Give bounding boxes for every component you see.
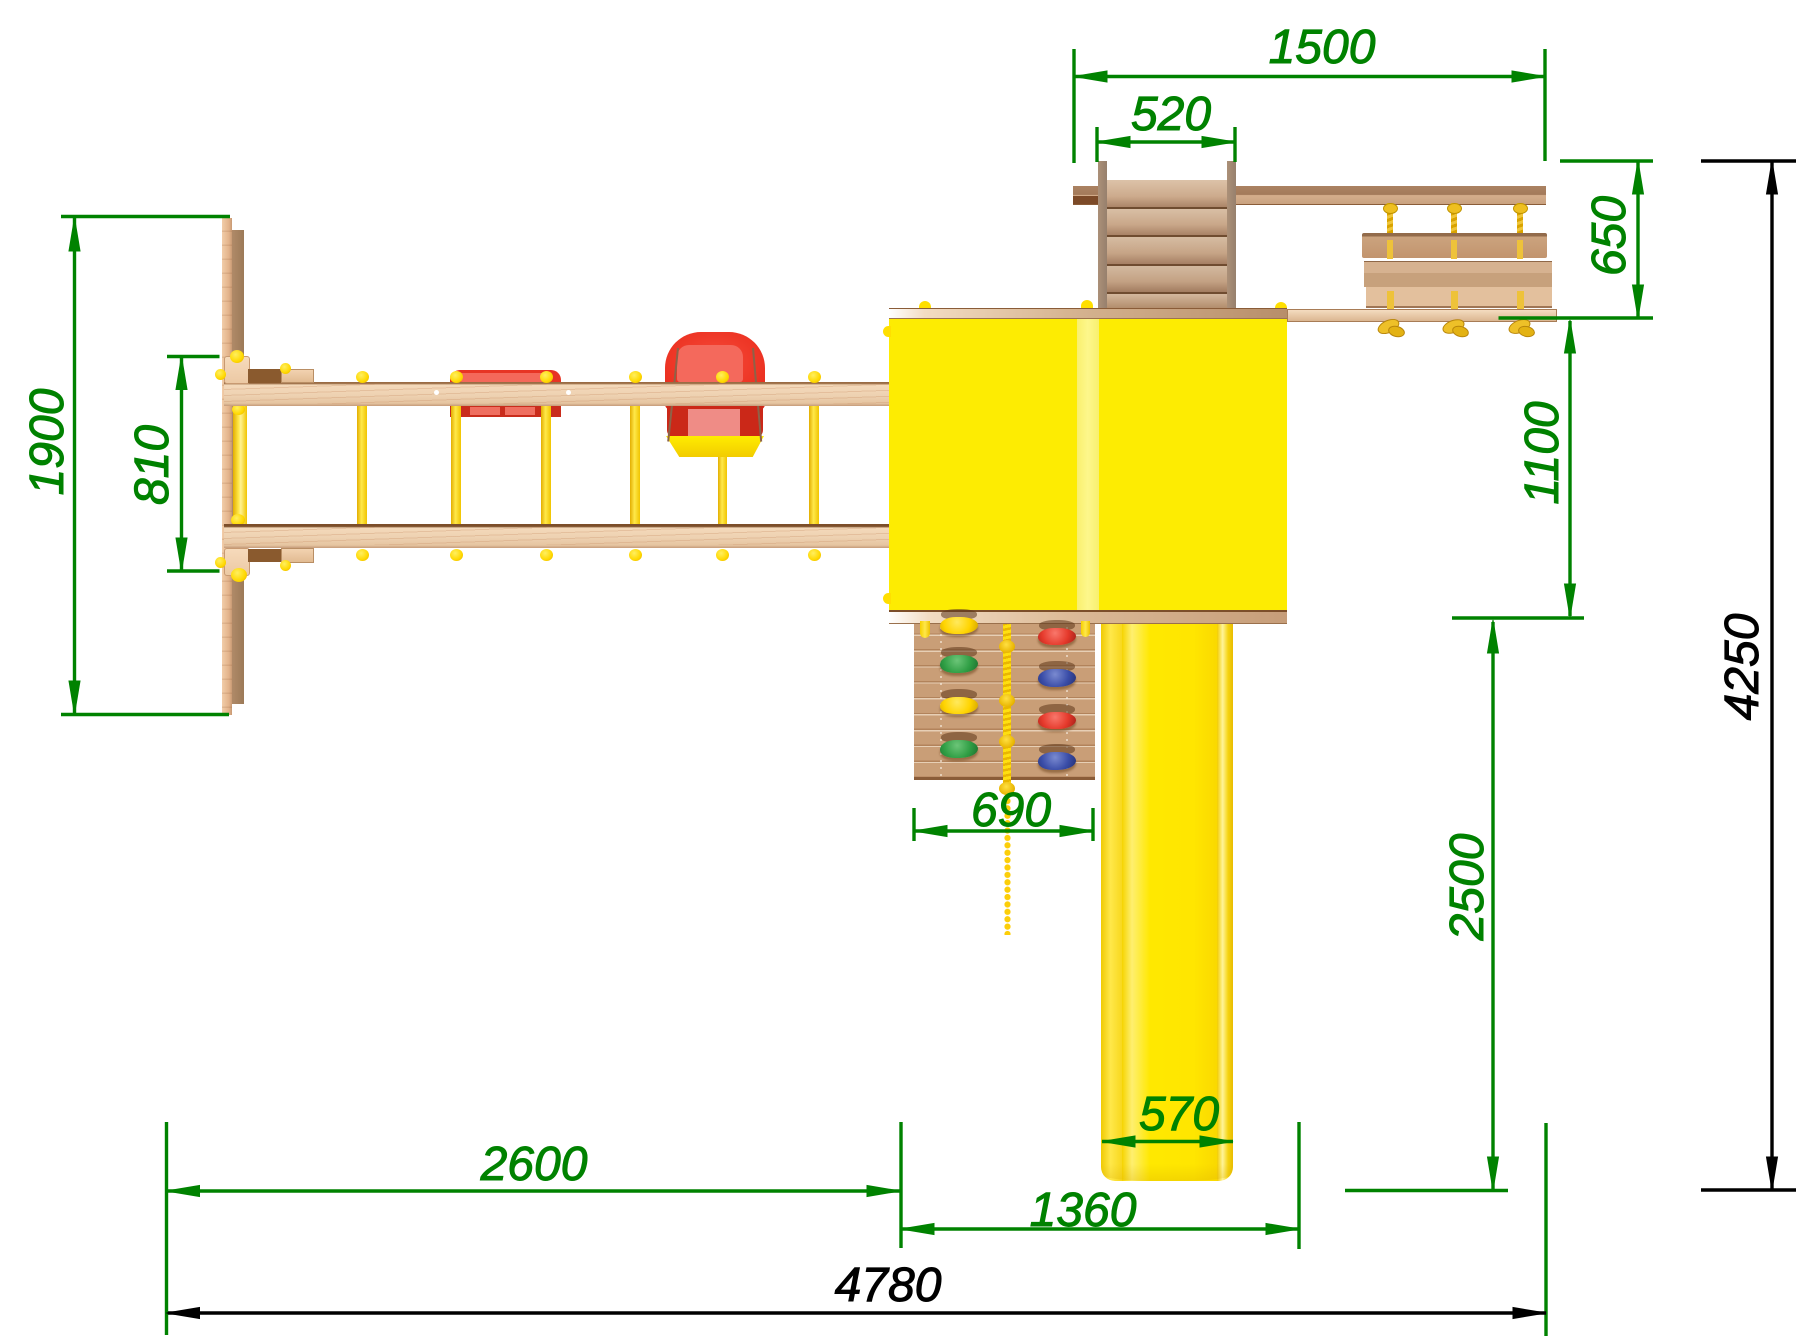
svg-text:650: 650 [1583,196,1636,276]
svg-text:1360: 1360 [1030,1184,1137,1237]
svg-text:570: 570 [1139,1088,1219,1141]
svg-text:520: 520 [1131,88,1211,141]
svg-text:810: 810 [126,425,179,505]
svg-text:1500: 1500 [1269,21,1376,74]
svg-text:4250: 4250 [1716,613,1769,720]
svg-text:690: 690 [971,784,1051,837]
svg-text:1100: 1100 [1516,401,1569,505]
svg-text:2500: 2500 [1441,833,1494,941]
svg-text:1900: 1900 [21,388,74,495]
svg-text:4780: 4780 [835,1259,942,1312]
svg-text:2600: 2600 [480,1138,588,1191]
